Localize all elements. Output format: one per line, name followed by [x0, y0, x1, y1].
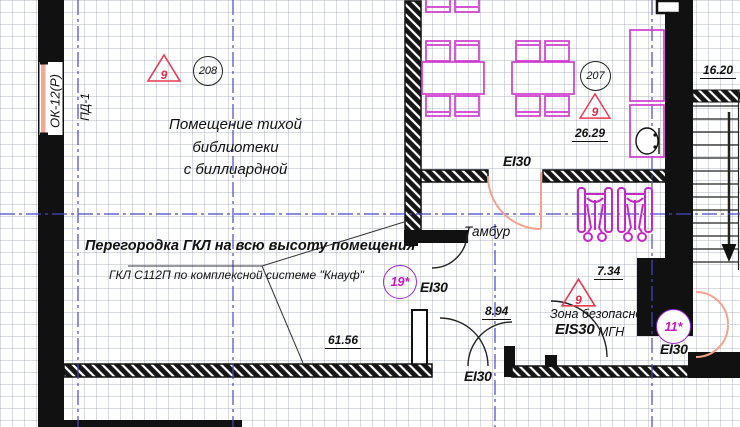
window-cap-top [40, 60, 48, 65]
chair [516, 41, 540, 61]
triangle-marker-zone: 9 [560, 277, 597, 308]
stairs [693, 90, 739, 270]
right-door-arc-top [696, 292, 728, 324]
room-title-line: Помещение тихой [148, 114, 323, 137]
mid-wall-piece [412, 310, 427, 372]
plan-drawing-layer [0, 0, 740, 427]
room-title-line: с биллиардной [148, 159, 323, 182]
triangle-number: 9 [560, 293, 597, 307]
bottom-edge-wall [64, 420, 242, 427]
dimension-dining: 26.29 [572, 127, 608, 142]
tambur-top-wall-left [421, 170, 488, 182]
stairs-top-wall [693, 90, 740, 102]
chair [545, 41, 569, 61]
chair [455, 96, 479, 116]
safety-zone-label: Зона безопасности [550, 308, 666, 322]
sink-icon [636, 128, 659, 154]
partition-note-spec: ГКЛ С112П по комплексной системе "Кнауф" [109, 269, 364, 282]
node-number: 19* [391, 275, 410, 289]
room-title-line: библиотеки [148, 137, 323, 160]
window-glazing [41, 64, 46, 133]
fire-rating-tambur-door: EI30 [503, 154, 531, 169]
tambur-door-arc [488, 176, 541, 229]
stair-direction-arrow [722, 244, 737, 262]
room-number: 208 [199, 65, 217, 77]
dimension-library: 61.56 [325, 334, 361, 349]
triangle-number: 9 [146, 68, 182, 82]
triangle-marker-dining: 9 [578, 92, 612, 120]
fire-rating-safety-zone: EIS30 [555, 322, 594, 339]
chair [455, 41, 479, 61]
bottom-wall-right [512, 366, 688, 377]
dimension-stairs: 16.20 [700, 64, 736, 79]
bottom-wall-left [64, 364, 432, 377]
chair [426, 0, 450, 12]
dimension-vestibule: 8.94 [482, 305, 511, 320]
floor-plan: ОК-12(Р) ПД-1 Помещение тихой библиотеки… [0, 0, 740, 427]
fire-rating-right-door: EI30 [660, 342, 688, 357]
partition-wall-vertical [405, 1, 421, 234]
room-number-circle-207: 207 [580, 61, 611, 91]
node-circle-19: 19* [383, 265, 417, 299]
room-number-circle-208: 208 [193, 56, 223, 86]
room-title-library: Помещение тихой библиотеки с биллиардной [148, 114, 323, 182]
safety-zone-mgn-label: МГН [598, 326, 624, 340]
counter [630, 30, 664, 101]
wheelchair-icon [618, 188, 652, 241]
table [422, 62, 484, 94]
table [512, 62, 574, 94]
triangle-number: 9 [578, 105, 612, 119]
right-wall [665, 0, 693, 260]
chair [455, 0, 479, 12]
room-title-tambur: Тамбур [464, 225, 510, 240]
node-number: 11* [665, 320, 683, 334]
top-right-stub [657, 1, 680, 13]
axis-mark-label: ПД-1 [78, 93, 92, 121]
chair [426, 96, 450, 116]
node-circle-11: 11* [656, 309, 691, 344]
bottom-right-wall [688, 352, 740, 378]
bottom-door-arc-left [440, 318, 488, 366]
room-number: 207 [586, 70, 604, 82]
chair [426, 41, 450, 61]
dimension-corridor: 7.34 [594, 265, 623, 280]
chair [516, 96, 540, 116]
window-mark-label: ОК-12(Р) [48, 74, 63, 128]
partition-note-title: Перегородка ГКЛ на всю высоту помещения [85, 239, 415, 255]
fire-rating-mid-door: EI30 [420, 280, 448, 295]
corridor-top-wall [543, 170, 666, 182]
window-cap-bottom [40, 133, 48, 138]
chair [545, 96, 569, 116]
fire-rating-bottom-door: EI30 [464, 369, 492, 384]
triangle-marker-library: 9 [146, 53, 182, 83]
tambur-bottom-wall [414, 230, 468, 243]
pilaster [545, 355, 557, 367]
furniture [422, 0, 664, 157]
